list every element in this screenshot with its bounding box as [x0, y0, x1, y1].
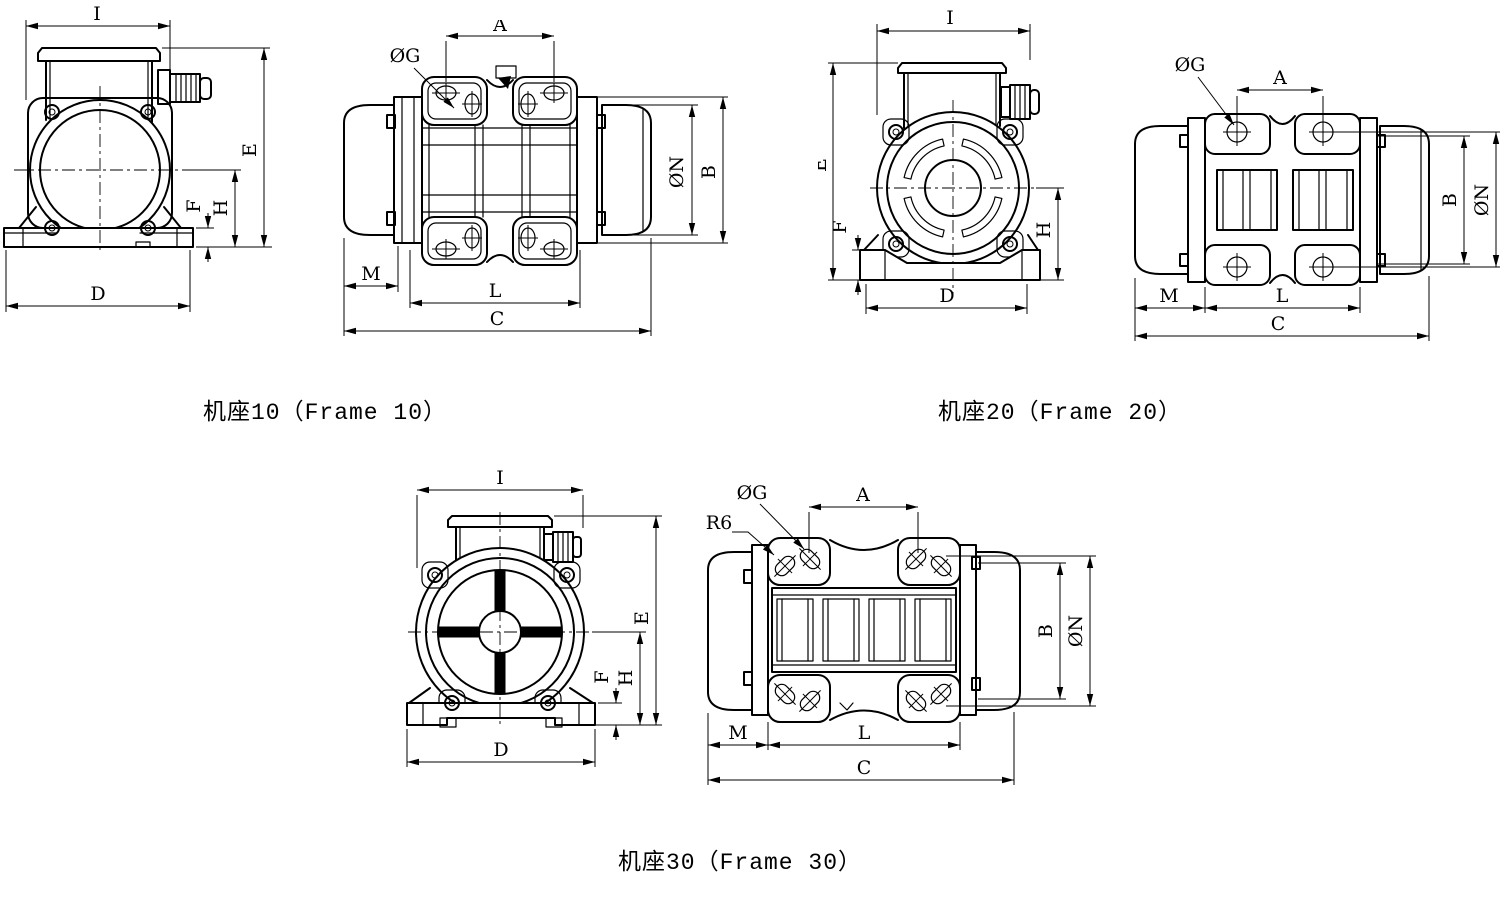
caption-frame30: 机座30（Frame 30）: [490, 842, 990, 876]
caption-frame10: 机座10（Frame 10）: [0, 392, 650, 426]
central-housing: [1205, 114, 1360, 285]
frame10-side-view: A ØG ØN B M L: [330, 20, 730, 355]
dim-label-I: I: [93, 3, 101, 25]
left-weight-cover: [1135, 118, 1205, 282]
dim-label-I: I: [946, 7, 954, 29]
dim-label-L: L: [489, 280, 502, 302]
dim-label-L: L: [1276, 285, 1289, 307]
dim-label-F: F: [183, 199, 205, 212]
dim-label-B: B: [698, 165, 720, 179]
frame20-front-drawing: I E F H D: [818, 0, 1110, 330]
motor-body: [409, 516, 593, 716]
frame20-front-view: I E F H D: [818, 0, 1110, 330]
dimension-ON: ØN: [1471, 132, 1496, 267]
dimension-M: M: [344, 238, 398, 292]
dim-label-E: E: [239, 143, 261, 157]
dim-label-OG: ØG: [737, 482, 768, 504]
dimension-ON: ØN: [630, 105, 698, 235]
dimension-D: D: [866, 284, 1027, 314]
dim-label-C: C: [490, 308, 505, 330]
dim-label-E: E: [631, 611, 653, 625]
dim-label-D: D: [939, 285, 954, 307]
dimension-L: L: [1205, 285, 1360, 313]
dim-label-H: H: [615, 670, 637, 687]
dimension-B: B: [978, 563, 1066, 699]
dimension-B: B: [1378, 136, 1470, 264]
base-foot: [4, 228, 193, 247]
dimension-B: B: [598, 97, 728, 243]
dim-label-C: C: [1271, 313, 1286, 335]
left-weight-cover: [708, 545, 768, 715]
frame30-side-drawing: ØG R6 A B ØN M: [690, 460, 1110, 805]
left-weight-cover: [344, 97, 422, 243]
dim-label-B: B: [1035, 624, 1057, 638]
dimension-D: D: [6, 250, 190, 312]
motor-body: [864, 63, 1039, 264]
right-weight-cover: [960, 545, 1020, 715]
dim-label-E: E: [818, 158, 831, 172]
dim-label-D: D: [493, 739, 508, 761]
dim-label-ON: ØN: [1471, 184, 1493, 216]
central-housing: [768, 538, 960, 722]
technical-drawing-sheet: I E H F D: [0, 0, 1500, 900]
dim-label-H: H: [210, 200, 232, 217]
frame10-front-drawing: I E H F D: [0, 0, 285, 340]
frame10-front-view: I E H F D: [0, 0, 285, 340]
dim-label-M: M: [1159, 285, 1178, 307]
dim-label-I: I: [496, 467, 504, 489]
dim-label-F: F: [829, 220, 851, 233]
dim-label-OG: ØG: [390, 45, 421, 67]
frame30-front-drawing: I E H F D: [390, 460, 690, 782]
dimension-I: I: [877, 7, 1030, 115]
dimension-L: L: [768, 722, 960, 750]
dim-label-F: F: [591, 670, 613, 683]
dim-label-D: D: [90, 283, 105, 305]
dim-label-OG: ØG: [1175, 54, 1206, 76]
dim-label-A: A: [492, 20, 507, 36]
frame20-side-view: ØG A B ØN M L: [1108, 40, 1500, 350]
dimension-ON: ØN: [1065, 556, 1090, 706]
base-foot: [407, 703, 595, 727]
dim-label-C: C: [857, 757, 872, 779]
dim-label-R6: R6: [706, 512, 732, 534]
dim-label-L: L: [858, 722, 871, 744]
dimension-A: A: [1237, 67, 1323, 124]
dim-label-A: A: [1272, 67, 1287, 89]
right-weight-cover: [577, 97, 651, 243]
dim-label-H: H: [1033, 222, 1055, 239]
frame30-side-view: ØG R6 A B ØN M: [690, 460, 1110, 805]
dim-label-M: M: [361, 263, 380, 285]
frame30-front-view: I E H F D: [390, 460, 690, 782]
centerlines: [408, 512, 592, 728]
dimension-M: M: [1135, 278, 1205, 313]
dim-label-B: B: [1439, 193, 1461, 207]
dim-label-M: M: [728, 722, 747, 744]
dimension-R6: R6: [706, 512, 774, 555]
dim-label-ON: ØN: [1065, 615, 1087, 647]
dimension-OG: ØG: [737, 482, 804, 549]
right-weight-cover: [1360, 118, 1429, 282]
foot-holes: [432, 83, 568, 259]
dimension-A: A: [446, 20, 554, 82]
dimension-E: E: [554, 516, 662, 725]
frame10-side-drawing: A ØG ØN B M L: [330, 20, 730, 355]
dimension-D: D: [407, 729, 595, 767]
frame20-side-drawing: ØG A B ØN M L: [1108, 40, 1500, 350]
dimension-M: M: [708, 713, 768, 750]
caption-frame20: 机座20（Frame 20）: [825, 392, 1295, 426]
dim-label-ON: ØN: [666, 156, 688, 188]
dim-label-A: A: [855, 484, 870, 506]
